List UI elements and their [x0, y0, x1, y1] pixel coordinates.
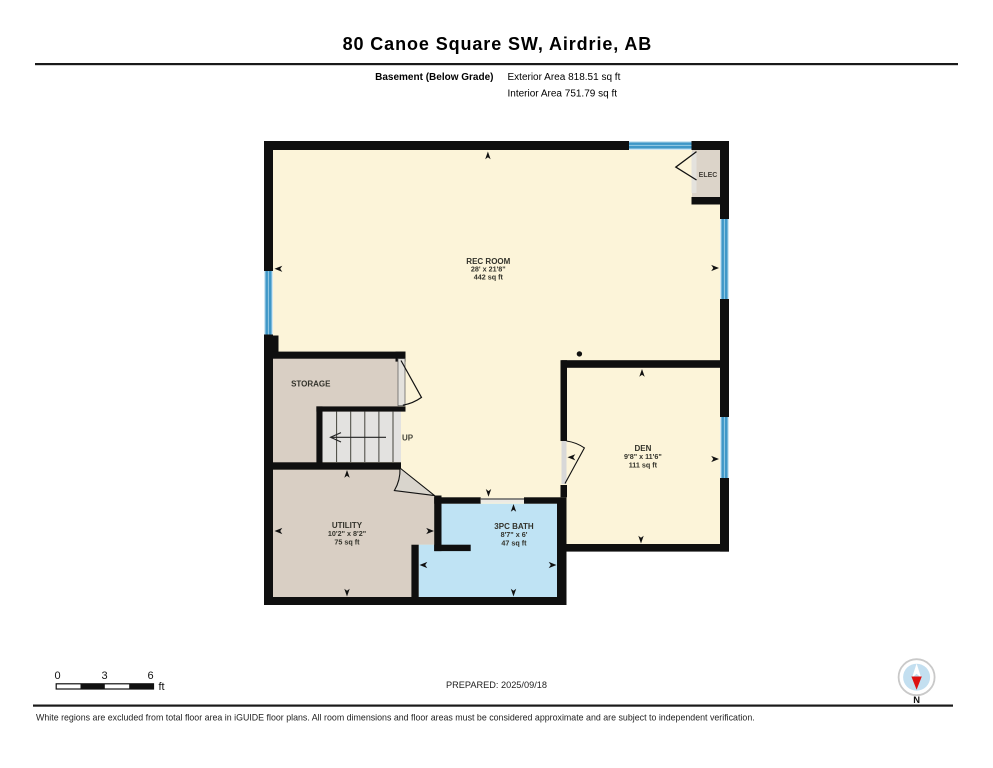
svg-text:6: 6 [147, 670, 153, 682]
svg-text:47 sq ft: 47 sq ft [501, 538, 527, 547]
svg-text:PREPARED: 2025/09/18: PREPARED: 2025/09/18 [446, 680, 547, 690]
svg-text:111 sq ft: 111 sq ft [629, 461, 658, 470]
svg-text:STORAGE: STORAGE [291, 380, 331, 389]
svg-text:9'8" x 11'6": 9'8" x 11'6" [624, 452, 662, 461]
svg-text:75 sq ft: 75 sq ft [334, 537, 360, 546]
svg-text:3: 3 [101, 670, 107, 682]
svg-text:Basement (Below Grade): Basement (Below Grade) [375, 72, 493, 83]
svg-text:ft: ft [159, 681, 165, 693]
svg-text:80 Canoe Square SW, Airdrie, A: 80 Canoe Square SW, Airdrie, AB [343, 34, 653, 54]
svg-text:White regions are excluded fro: White regions are excluded from total fl… [36, 713, 755, 723]
svg-text:442 sq ft: 442 sq ft [474, 272, 504, 281]
svg-text:N: N [913, 694, 920, 705]
svg-text:Exterior Area 818.51 sq ft: Exterior Area 818.51 sq ft [508, 72, 621, 83]
svg-text:Interior Area 751.79 sq ft: Interior Area 751.79 sq ft [508, 89, 618, 100]
svg-text:UP: UP [402, 434, 414, 443]
svg-text:0: 0 [54, 670, 60, 682]
svg-text:ELEC: ELEC [699, 172, 718, 179]
